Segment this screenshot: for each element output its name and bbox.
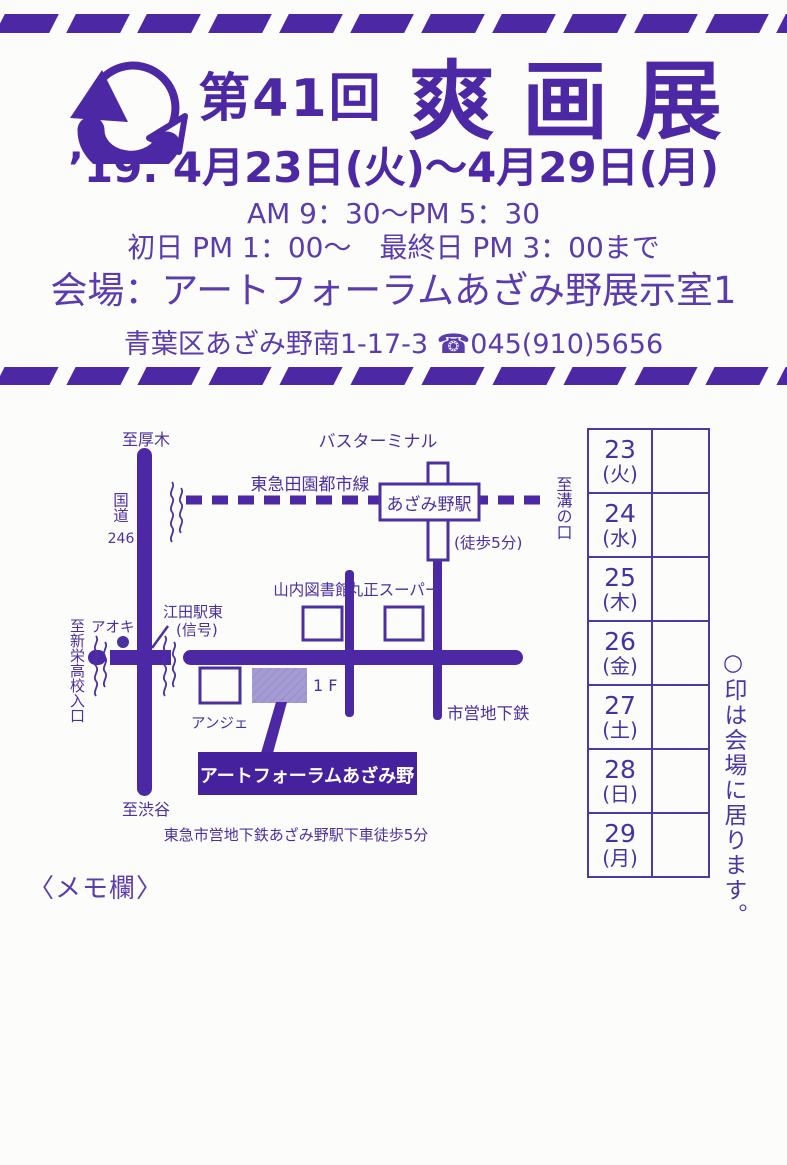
calendar-mark-cell: [651, 750, 708, 812]
signal-label: (信号): [176, 621, 218, 639]
exhibition-flyer: 第41回 爽画展 ’19. 4月23日(火)～4月29日(月) AM 9：30～…: [0, 0, 787, 1165]
calendar-date: 24(水): [589, 494, 651, 556]
aoki-label: アオキ: [91, 620, 135, 636]
calendar-row: 23(火): [589, 430, 708, 492]
floor-label: 1 F: [313, 676, 337, 695]
calendar-date: 28(日): [589, 750, 651, 812]
title-ordinal: 第41回: [198, 56, 382, 131]
station-platform-bottom: [428, 518, 448, 560]
library-label: 山内図書館: [273, 581, 351, 599]
attendance-calendar: 23(火) 24(水) 25(木) 26(金) 27(土) 28(日) 29(月…: [587, 428, 710, 878]
calendar-mark-cell: [651, 686, 708, 748]
calendar-note: ○印は会場に居ります。: [716, 650, 750, 890]
walk-5min-label: (徒歩5分): [454, 534, 522, 552]
access-note-label: 東急市営地下鉄あざみ野駅下車徒歩5分: [164, 826, 429, 844]
memo-label: 〈メモ欄〉: [28, 868, 163, 905]
supermarket-box: [385, 607, 423, 640]
aoki-dot: [117, 636, 129, 648]
to-shinei-school-label: 至新栄高校入口: [68, 618, 86, 723]
calendar-date: 25(木): [589, 558, 651, 620]
calendar-date: 29(月): [589, 814, 651, 876]
calendar-mark-cell: [651, 430, 708, 492]
venue-pointer: [261, 702, 287, 753]
bus-terminal-label: バスターミナル: [319, 432, 438, 452]
venue-address-phone: 青葉区あざみ野南1-17-3 ☎045(910)5656: [0, 322, 787, 361]
to-atsugi-label: 至厚木: [122, 430, 170, 449]
venue-label: アートフォーラムあざみ野: [200, 765, 414, 787]
anje-label: アンジェ: [191, 716, 248, 732]
road-route246: [137, 448, 152, 796]
access-map: あざみ野駅 アートフォーラムあざみ野 至厚木 バスターミナル 東急田園都市線 至…: [60, 420, 580, 852]
to-mizonokuchi-label: 至溝の口: [554, 476, 573, 540]
exhibition-title: 第41回 爽画展: [150, 44, 770, 142]
subway-label: 市営地下鉄: [447, 704, 530, 723]
calendar-row: 25(木): [589, 556, 708, 620]
to-shibuya-label: 至渋谷: [122, 800, 170, 819]
route-number-label: 246: [108, 531, 135, 547]
eda-station-east-label: 江田駅東: [163, 603, 223, 621]
library-box: [303, 607, 342, 640]
calendar-date: 23(火): [589, 430, 651, 492]
venue-name: 会場：アートフォーラムあざみ野展示室1: [0, 260, 787, 314]
rail-line-label: 東急田園都市線: [251, 475, 370, 495]
calendar-date: 27(土): [589, 686, 651, 748]
calendar-row: 24(水): [589, 492, 708, 556]
main-road-left: [110, 650, 171, 665]
exhibition-dates: ’19. 4月23日(火)～4月29日(月): [0, 134, 787, 195]
calendar-date: 26(金): [589, 622, 651, 684]
middle-stripe-border: [0, 367, 787, 385]
calendar-mark-cell: [651, 622, 708, 684]
calendar-row: 29(月): [589, 812, 708, 876]
calendar-row: 27(土): [589, 684, 708, 748]
station-label: あざみ野駅: [387, 494, 472, 515]
supermarket-label: 丸正スーパー: [348, 581, 441, 599]
route-label: 国道: [111, 492, 129, 523]
calendar-mark-cell: [651, 558, 708, 620]
calendar-row: 26(金): [589, 620, 708, 684]
calendar-mark-cell: [651, 814, 708, 876]
venue-building-box: [252, 668, 307, 703]
anje-box: [200, 668, 240, 703]
calendar-row: 28(日): [589, 748, 708, 812]
calendar-mark-cell: [651, 494, 708, 556]
